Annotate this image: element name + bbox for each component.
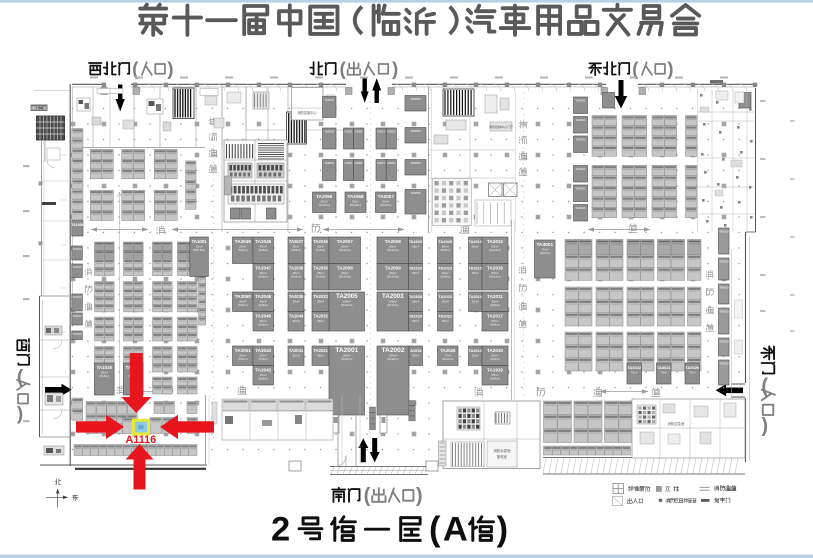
- svg-text:(9x9m): (9x9m): [540, 251, 550, 255]
- svg-text:(5x5m): (5x5m): [238, 357, 248, 361]
- svg-text:(6x5m): (6x5m): [440, 275, 450, 279]
- svg-text:2: 2: [271, 510, 290, 548]
- svg-text:(9x12m): (9x12m): [489, 248, 500, 252]
- svg-text:(: (: [17, 366, 24, 387]
- svg-text:35m²: 35m²: [317, 319, 324, 323]
- svg-text:(9x10m): (9x10m): [339, 248, 350, 252]
- svg-text:TA3056: TA3056: [410, 129, 421, 133]
- svg-text:消防水泵房: 消防水泵房: [494, 448, 512, 453]
- svg-text:A3051: A3051: [355, 130, 364, 134]
- svg-text:(9x6m): (9x6m): [490, 323, 500, 327]
- svg-text:(9x6m): (9x6m): [490, 303, 500, 307]
- svg-text:TA3015: TA3015: [719, 310, 729, 314]
- svg-text:TA3015: TA3015: [719, 260, 729, 264]
- svg-text:TA3056: TA3056: [410, 161, 421, 165]
- svg-text:75m²: 75m²: [631, 370, 638, 374]
- svg-text:25m²: 25m²: [412, 299, 419, 303]
- svg-text:(: (: [761, 375, 768, 397]
- svg-text:TA3041: TA3041: [575, 206, 586, 210]
- svg-text:(9x10m): (9x10m): [387, 248, 398, 252]
- svg-text:(9x20m): (9x20m): [387, 357, 398, 361]
- svg-text:(: (: [339, 59, 346, 80]
- svg-text:(: (: [364, 485, 371, 507]
- svg-text:A3051: A3051: [344, 161, 353, 165]
- svg-text:A1116: A1116: [125, 434, 156, 446]
- svg-text:(8x12m): (8x12m): [387, 303, 398, 307]
- svg-text:(5x5m): (5x5m): [238, 248, 248, 252]
- svg-text:A: A: [443, 510, 468, 548]
- svg-text:25m²: 25m²: [412, 271, 419, 275]
- svg-text:35m²: 35m²: [317, 299, 324, 303]
- svg-text:(6x5m): (6x5m): [291, 275, 301, 279]
- svg-text:TA3041: TA3041: [575, 167, 586, 171]
- svg-text:TA3015: TA3015: [719, 230, 729, 234]
- svg-text:TA3041: TA3041: [575, 138, 586, 142]
- svg-text:25m²: 25m²: [472, 299, 479, 303]
- svg-text:A3051: A3051: [387, 130, 396, 134]
- svg-text:25m²: 25m²: [472, 271, 479, 275]
- svg-text:TA3015: TA3015: [719, 340, 729, 344]
- svg-text:(: (: [429, 510, 441, 548]
- svg-text:(5x10m): (5x10m): [380, 203, 391, 207]
- svg-text:(7x5m): (7x5m): [316, 248, 326, 252]
- svg-text:(6x5m): (6x5m): [99, 374, 109, 378]
- svg-text:(5x10m): (5x10m): [319, 203, 330, 207]
- svg-text:(6x5.5m): (6x5.5m): [193, 248, 205, 252]
- svg-text:): ): [167, 59, 173, 80]
- svg-text:消防控制中心门厅: 消防控制中心门厅: [489, 124, 513, 129]
- svg-text:75m²: 75m²: [660, 370, 667, 374]
- svg-text:TA3051: TA3051: [325, 130, 335, 134]
- svg-text:TA3051: TA3051: [325, 161, 335, 165]
- svg-text:TA3051: TA3051: [325, 98, 335, 102]
- svg-text:(5x5m): (5x5m): [238, 303, 248, 307]
- svg-text:(5x5m): (5x5m): [258, 357, 268, 361]
- svg-text:(5x5m): (5x5m): [258, 323, 268, 327]
- svg-text:A3051: A3051: [387, 161, 396, 165]
- svg-text:45m²: 45m²: [412, 353, 419, 357]
- svg-text:): ): [392, 59, 398, 80]
- svg-text:TA3041: TA3041: [575, 187, 586, 191]
- svg-text:25m²: 25m²: [412, 244, 419, 248]
- svg-text:TA3056: TA3056: [410, 97, 421, 101]
- svg-text:30m²: 30m²: [292, 319, 299, 323]
- svg-text:): ): [667, 59, 673, 80]
- svg-text:TA3041: TA3041: [575, 99, 586, 103]
- svg-text:(6x5m): (6x5m): [291, 248, 301, 252]
- svg-text:25m²: 25m²: [472, 244, 479, 248]
- svg-text:): ): [761, 415, 768, 437]
- svg-text:(7x5m): (7x5m): [316, 275, 326, 279]
- svg-text:75m²: 75m²: [689, 370, 696, 374]
- svg-text:TA1008: TA1008: [71, 223, 83, 227]
- svg-text:(9x20m): (9x20m): [341, 357, 352, 361]
- svg-text:(9x12m): (9x12m): [489, 275, 500, 279]
- svg-text:30m²: 30m²: [442, 319, 449, 323]
- svg-text:消防控制中心: 消防控制中心: [297, 110, 317, 115]
- svg-text:(9x12m): (9x12m): [341, 303, 352, 307]
- svg-text:(9x6m): (9x6m): [490, 377, 500, 381]
- svg-text:TA3015: TA3015: [719, 362, 729, 366]
- svg-text:(9x5m): (9x5m): [258, 303, 268, 307]
- svg-text:(5x5m): (5x5m): [258, 275, 268, 279]
- svg-text:30m²: 30m²: [442, 299, 449, 303]
- svg-text:TA1013: TA1013: [73, 332, 82, 336]
- svg-text:): ): [497, 510, 509, 548]
- svg-text:(9x5m): (9x5m): [258, 248, 268, 252]
- svg-text:25m²: 25m²: [472, 353, 479, 357]
- svg-text:A3051: A3051: [377, 161, 386, 165]
- svg-text:通往二层: 通往二层: [31, 105, 47, 111]
- svg-text:TA3056: TA3056: [410, 191, 421, 195]
- svg-text:25m²: 25m²: [412, 319, 419, 323]
- svg-text:(9x10m): (9x10m): [387, 275, 398, 279]
- svg-text:(9x10m): (9x10m): [339, 275, 350, 279]
- svg-text:(9x12m): (9x12m): [442, 357, 453, 361]
- svg-text:消防应急室: 消防应急室: [668, 421, 686, 426]
- svg-text:TA1013: TA1013: [73, 265, 82, 269]
- svg-text:(5x10m): (5x10m): [350, 203, 361, 207]
- svg-text:30m²: 30m²: [292, 299, 299, 303]
- svg-text:A3051: A3051: [377, 130, 386, 134]
- svg-text:TA3041: TA3041: [575, 118, 586, 122]
- svg-text:A3051: A3051: [355, 161, 364, 165]
- svg-text:): ): [17, 403, 23, 424]
- svg-text:): ): [416, 485, 423, 507]
- svg-text:A3051: A3051: [344, 130, 353, 134]
- svg-text:配电室: 配电室: [497, 454, 508, 459]
- svg-text:TA1013: TA1013: [73, 314, 82, 318]
- svg-text:(6x5m): (6x5m): [440, 248, 450, 252]
- svg-text:TA1013: TA1013: [73, 295, 82, 299]
- svg-text:(5x5m): (5x5m): [258, 377, 268, 381]
- svg-text:(9x6m): (9x6m): [490, 357, 500, 361]
- svg-text:TA1013: TA1013: [73, 247, 82, 251]
- svg-text:30m²: 30m²: [292, 353, 299, 357]
- svg-text:45m²: 45m²: [317, 353, 324, 357]
- svg-text:TA3015: TA3015: [719, 286, 729, 290]
